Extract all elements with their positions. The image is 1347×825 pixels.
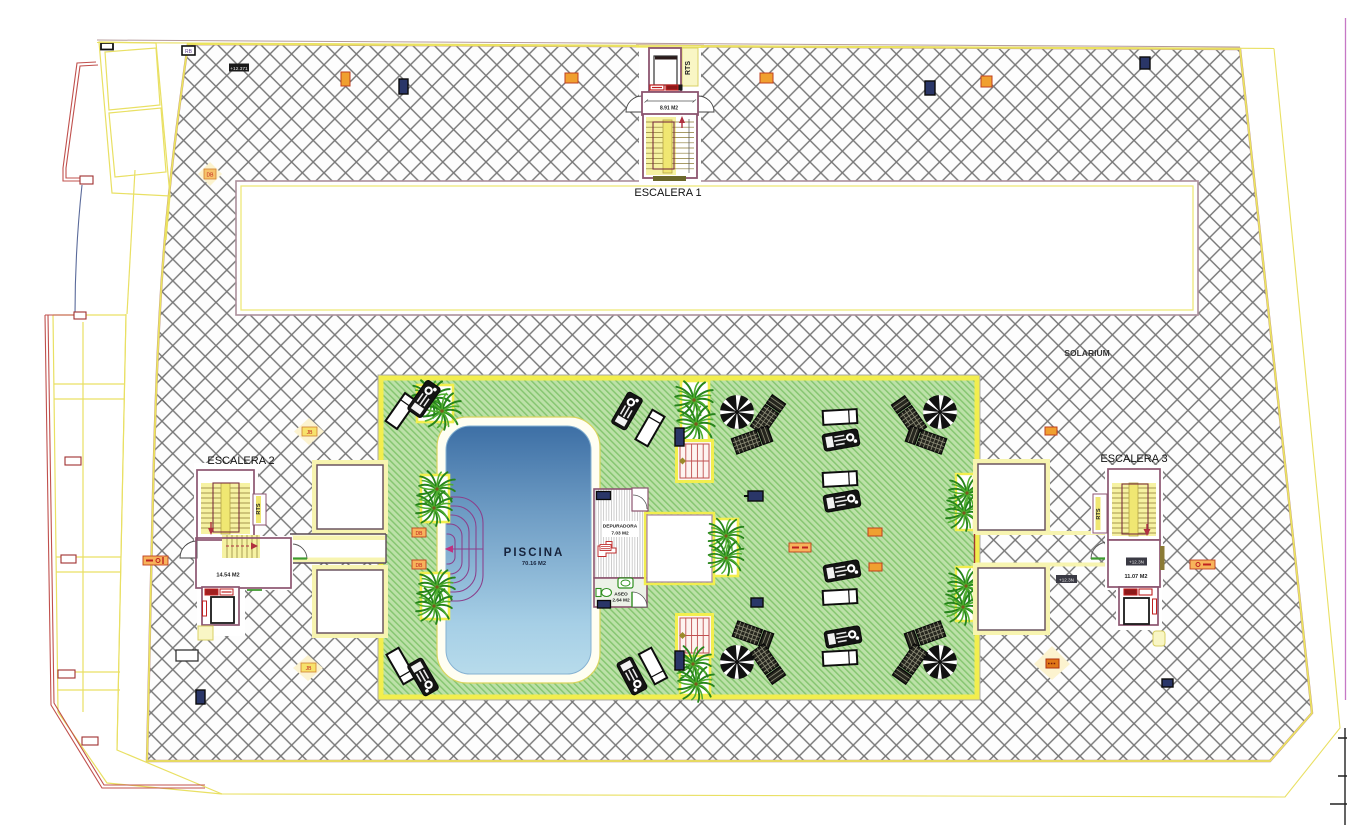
svg-text:DB: DB bbox=[416, 531, 424, 537]
svg-text:11.07 M2: 11.07 M2 bbox=[1124, 574, 1147, 580]
svg-text:+12.371: +12.371 bbox=[230, 66, 248, 72]
svg-text:ESCALERA 2: ESCALERA 2 bbox=[207, 455, 274, 467]
svg-text:2.64 M2: 2.64 M2 bbox=[612, 598, 630, 604]
svg-text:+12.3N: +12.3N bbox=[1059, 578, 1074, 583]
svg-text:JB: JB bbox=[306, 666, 313, 672]
svg-text:RB: RB bbox=[185, 49, 193, 55]
svg-text:14.54 M2: 14.54 M2 bbox=[216, 573, 239, 579]
svg-text:+12.3N: +12.3N bbox=[1129, 560, 1144, 565]
svg-text:DEPURADORA: DEPURADORA bbox=[603, 524, 638, 530]
svg-text:7.03 M2: 7.03 M2 bbox=[611, 531, 629, 537]
svg-text:JB: JB bbox=[307, 430, 314, 436]
svg-text:8.91 M2: 8.91 M2 bbox=[660, 106, 678, 112]
svg-text:RTS: RTS bbox=[1096, 508, 1102, 519]
svg-text:PISCINA: PISCINA bbox=[504, 547, 565, 559]
svg-text:DB: DB bbox=[207, 173, 215, 179]
svg-text:ESCALERA 3: ESCALERA 3 bbox=[1100, 453, 1167, 465]
svg-text:DB: DB bbox=[416, 563, 424, 569]
svg-text:SOLARIUM: SOLARIUM bbox=[1064, 348, 1109, 358]
svg-text:ASEO: ASEO bbox=[614, 592, 628, 598]
svg-text:ESCALERA 1: ESCALERA 1 bbox=[634, 187, 701, 199]
svg-text:70.16 M2: 70.16 M2 bbox=[522, 561, 546, 567]
svg-text:RTS: RTS bbox=[256, 503, 262, 514]
svg-text:RTS: RTS bbox=[685, 61, 692, 75]
